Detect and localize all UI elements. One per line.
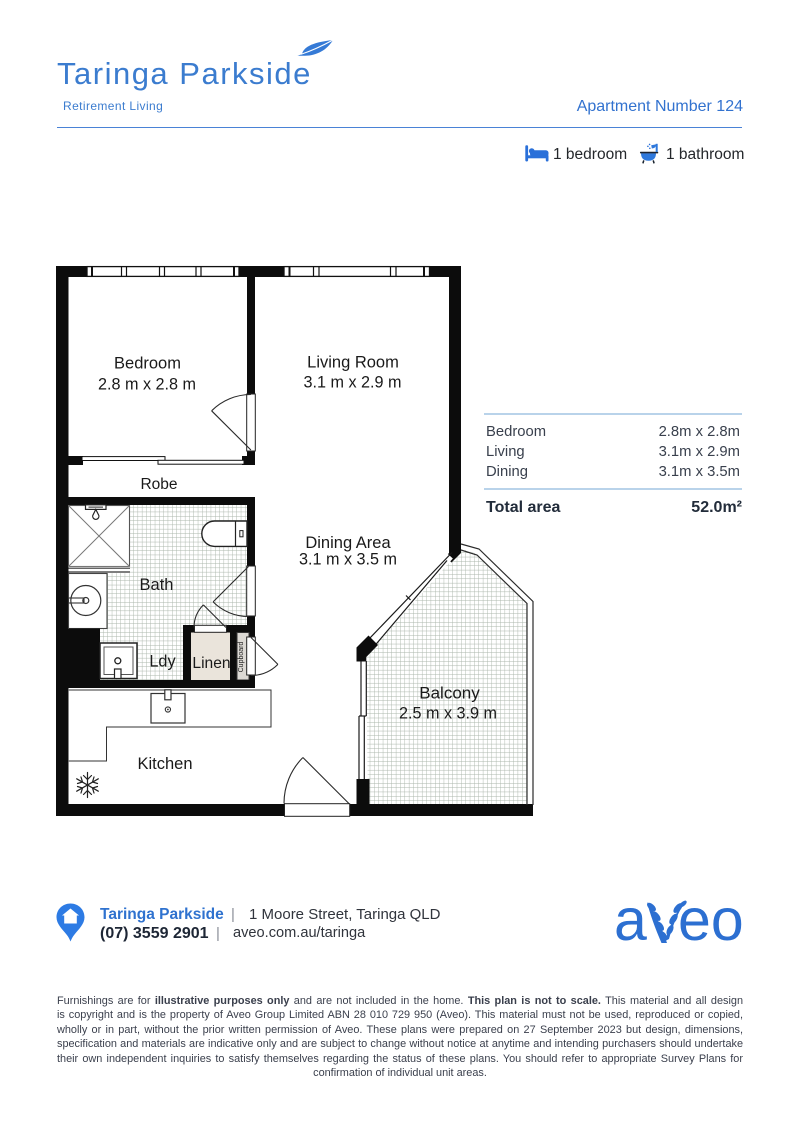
svg-text:Living Room: Living Room [307, 354, 399, 372]
svg-text:Linen: Linen [192, 655, 230, 672]
svg-text:Balcony: Balcony [419, 683, 480, 702]
svg-text:Dining Area: Dining Area [305, 534, 391, 552]
svg-text:Bath: Bath [140, 576, 174, 594]
svg-text:Robe: Robe [140, 476, 177, 493]
svg-text:2.8 m x 2.8 m: 2.8 m x 2.8 m [98, 376, 196, 394]
svg-text:3.1 m x 2.9 m: 3.1 m x 2.9 m [303, 374, 401, 392]
svg-text:Bedroom: Bedroom [114, 355, 181, 373]
svg-text:Cupboard: Cupboard [238, 642, 245, 673]
svg-text:Kitchen: Kitchen [137, 755, 192, 773]
svg-text:2.5 m x 3.9 m: 2.5 m x 3.9 m [399, 704, 497, 722]
svg-text:3.1 m x 3.5 m: 3.1 m x 3.5 m [299, 551, 397, 569]
svg-text:Ldy: Ldy [149, 653, 176, 671]
